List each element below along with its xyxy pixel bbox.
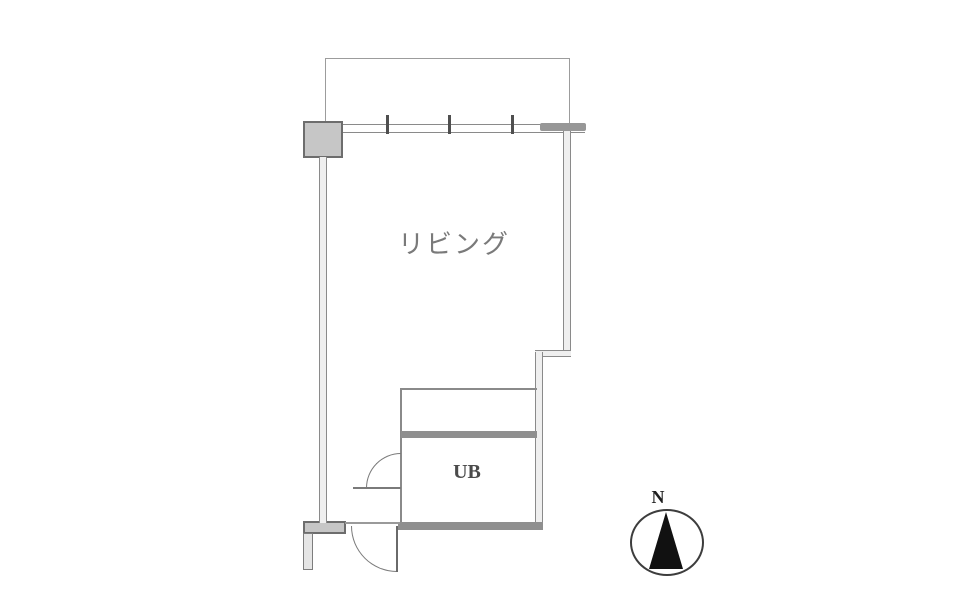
unit-bath-label: UB (443, 461, 491, 484)
window-right-end-wall (540, 123, 586, 131)
window-mullion-tick (511, 115, 514, 134)
entrance-wall-stub (303, 533, 313, 570)
pillar-top-left (303, 121, 343, 158)
unit-bath-bottom-wall (398, 522, 543, 530)
closet-top-line (401, 388, 537, 390)
unit-bath-top-wall (401, 431, 537, 438)
entrance-threshold-line (345, 522, 400, 524)
left-wall (319, 157, 327, 523)
entrance-door-swing-arc (351, 526, 397, 572)
unit-bath-door-swing-arc (366, 453, 401, 488)
living-room-label: リビング (374, 224, 534, 261)
right-wall-upper (563, 131, 571, 357)
right-wall-lower (535, 352, 543, 530)
entrance-door-leaf (396, 526, 398, 572)
window-mullion-tick (386, 115, 389, 134)
window-mullion-tick (448, 115, 451, 134)
unit-bath-door-leaf (353, 487, 401, 489)
floorplan-canvas: リビング UB N (0, 0, 980, 606)
compass-needle-icon (649, 512, 683, 569)
compass-north-label: N (644, 487, 672, 508)
